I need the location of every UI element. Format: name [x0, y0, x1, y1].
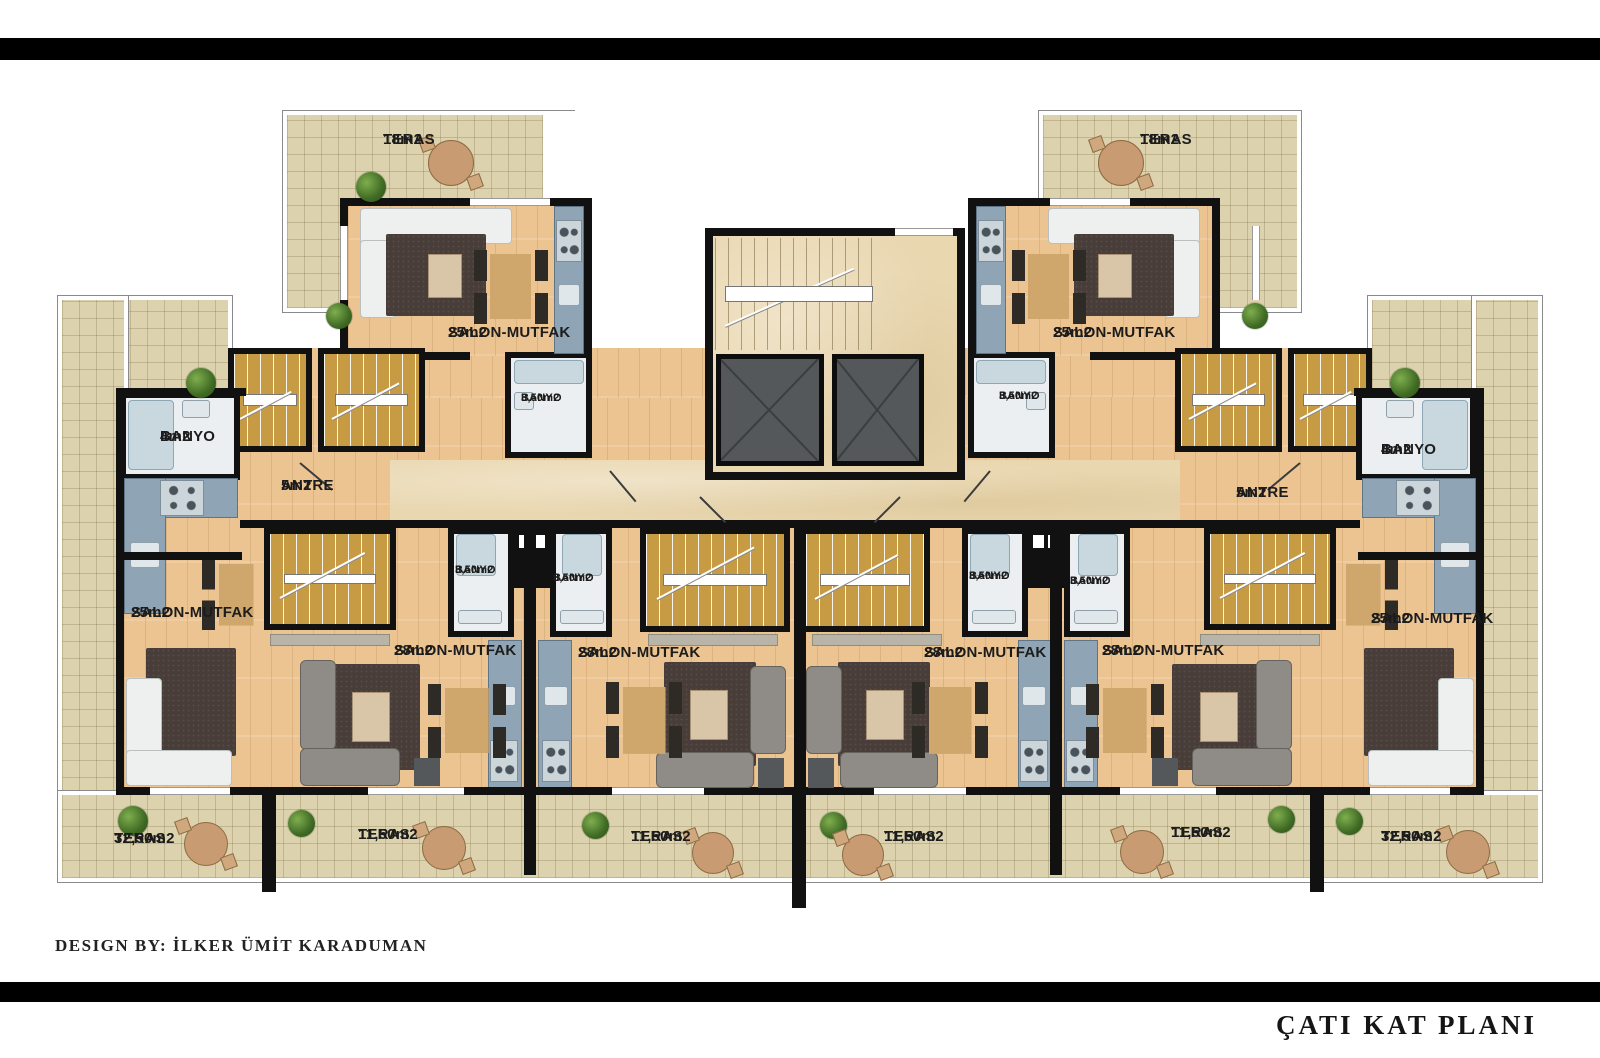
sofa — [1192, 748, 1292, 786]
plant — [1390, 368, 1420, 398]
page-title: ÇATI KAT PLANI — [1276, 1010, 1537, 1041]
sofa — [806, 666, 842, 754]
stair-handrail — [284, 574, 375, 585]
stove — [1396, 480, 1440, 516]
sink — [458, 610, 502, 624]
room-area: 11,50m2 — [631, 828, 691, 846]
room-area: 18m2 — [1140, 131, 1179, 149]
elevator-cross-line — [836, 359, 920, 462]
room-area: 28m2 — [1102, 642, 1141, 660]
room-area: 3,50m2 — [1070, 575, 1109, 588]
sink — [544, 686, 568, 706]
dining-set — [474, 250, 548, 324]
sofa — [300, 748, 400, 786]
stair-handrail — [725, 286, 873, 302]
terrace-table — [1098, 140, 1144, 186]
room-area: 11,50m2 — [358, 826, 418, 844]
room-area: 28m2 — [924, 644, 963, 662]
sofa — [300, 660, 336, 750]
window — [150, 787, 230, 795]
sink — [182, 400, 210, 418]
window — [1370, 787, 1450, 795]
wall-segment — [1212, 198, 1220, 360]
window — [1120, 787, 1216, 795]
room-area: 28m2 — [394, 642, 433, 660]
wall-segment — [1050, 795, 1062, 875]
wall-segment — [1476, 390, 1484, 795]
window — [368, 787, 464, 795]
tv-unit — [808, 758, 834, 788]
terrace-table — [842, 834, 884, 876]
terrace-table — [692, 832, 734, 874]
terrace-table — [184, 822, 228, 866]
room-area: 32,50m2 — [114, 830, 175, 848]
room-area: 25m2 — [1053, 324, 1092, 342]
tub — [562, 534, 602, 576]
wall-segment — [524, 528, 536, 790]
wall-segment — [524, 795, 536, 875]
wall-segment — [116, 388, 246, 396]
room-area: 18m2 — [383, 131, 422, 149]
plant — [1268, 806, 1295, 833]
core-door — [895, 228, 953, 236]
wall-segment — [794, 528, 806, 790]
room-area: 5m2 — [281, 477, 312, 495]
stove — [1020, 740, 1048, 782]
room-area: 5m2 — [1236, 484, 1267, 502]
room-area: 3,50m2 — [521, 392, 560, 405]
sink — [980, 284, 1002, 306]
tub — [514, 360, 584, 384]
staircase — [264, 528, 396, 630]
window — [874, 787, 966, 795]
room-area: 25m2 — [448, 324, 487, 342]
wall-segment — [1310, 795, 1324, 892]
designer-credit: DESIGN BY: İLKER ÜMİT KARADUMAN — [55, 936, 427, 956]
wall-segment — [584, 198, 592, 360]
plant — [288, 810, 315, 837]
sofa — [126, 750, 232, 786]
tv-unit — [758, 758, 784, 788]
terrace-table — [428, 140, 474, 186]
window — [470, 198, 550, 206]
sink — [560, 610, 604, 624]
wall-segment — [1358, 552, 1476, 560]
stove — [542, 740, 570, 782]
room-area: 32,50m2 — [1381, 828, 1442, 846]
wall-segment — [116, 390, 124, 795]
sink — [1022, 686, 1046, 706]
stove — [160, 480, 204, 516]
room-area: 3,50m2 — [999, 390, 1038, 403]
tv-unit — [1152, 758, 1178, 786]
wall-segment — [968, 198, 976, 360]
coffee-table — [866, 690, 904, 740]
wall-segment — [1354, 388, 1484, 396]
shelf — [270, 634, 390, 646]
elevator-shaft — [832, 354, 924, 466]
coffee-table — [690, 690, 728, 740]
wall-segment — [124, 552, 242, 560]
stove — [556, 220, 582, 262]
terrace-right-strip — [1476, 300, 1538, 795]
staircase — [1204, 528, 1336, 630]
stove — [978, 220, 1004, 262]
tub — [976, 360, 1046, 384]
room-area: 3,50m2 — [969, 570, 1008, 583]
sink — [558, 284, 580, 306]
sink — [1386, 400, 1414, 418]
room-area: 3,50m2 — [455, 564, 494, 577]
room-area: 11,50m2 — [884, 828, 944, 846]
plant — [1336, 808, 1363, 835]
plant — [356, 172, 386, 202]
sofa — [1256, 660, 1292, 750]
sink — [1074, 610, 1118, 624]
plant — [186, 368, 216, 398]
wsq — [1033, 535, 1044, 548]
staircase — [228, 348, 312, 452]
terrace-left-strip — [62, 300, 124, 795]
wall-segment — [240, 520, 1360, 528]
plant — [1242, 303, 1268, 329]
terrace-table — [422, 826, 466, 870]
dining-set — [428, 684, 506, 758]
wall-segment — [262, 795, 276, 892]
coffee-table — [1098, 254, 1132, 298]
stair-handrail — [1224, 574, 1315, 585]
staircase — [640, 528, 790, 632]
tub — [1422, 400, 1468, 470]
sofa — [1368, 750, 1474, 786]
dining-set — [606, 682, 682, 758]
plant — [582, 812, 609, 839]
coffee-table — [428, 254, 462, 298]
room-area: 28m2 — [578, 644, 617, 662]
shelf — [812, 634, 942, 646]
room-area: 4m2 — [1381, 441, 1412, 459]
floor-plan-drawing: TERAS18m2TERAS18m2SALON-MUTFAK25m2SALON-… — [0, 0, 1600, 980]
room-area: 4m2 — [160, 428, 191, 446]
coffee-table — [1200, 692, 1238, 742]
stair-direction-line — [657, 547, 755, 601]
room-area: 25m2 — [1371, 610, 1410, 628]
bottom-border-bar — [0, 982, 1600, 1002]
staircase — [318, 348, 425, 452]
stair-handrail — [820, 574, 910, 585]
terrace-notch — [543, 111, 607, 207]
window — [612, 787, 704, 795]
wall-segment — [1050, 528, 1062, 790]
sink — [972, 610, 1016, 624]
window — [1050, 198, 1130, 206]
window — [1252, 226, 1260, 300]
dining-set — [1012, 250, 1086, 324]
terrace-table — [1120, 830, 1164, 874]
coffee-table — [352, 692, 390, 742]
plant — [326, 303, 352, 329]
dining-set — [912, 682, 988, 758]
sofa — [750, 666, 786, 754]
staircase — [1175, 348, 1282, 452]
room-area: 11,50m2 — [1171, 824, 1231, 842]
tv-unit — [414, 758, 440, 786]
tub — [1078, 534, 1118, 576]
wall-segment — [792, 795, 806, 908]
elevator-shaft — [716, 354, 824, 466]
stair-handrail — [663, 574, 768, 585]
room-area: 3,50m2 — [553, 572, 592, 585]
dining-set — [1086, 684, 1164, 758]
window — [340, 226, 348, 300]
staircase — [800, 528, 930, 632]
floor-plan-page: TERAS18m2TERAS18m2SALON-MUTFAK25m2SALON-… — [0, 0, 1600, 1058]
elevator-cross-line — [720, 359, 819, 462]
terrace-table — [1446, 830, 1490, 874]
room-area: 25m2 — [131, 604, 170, 622]
